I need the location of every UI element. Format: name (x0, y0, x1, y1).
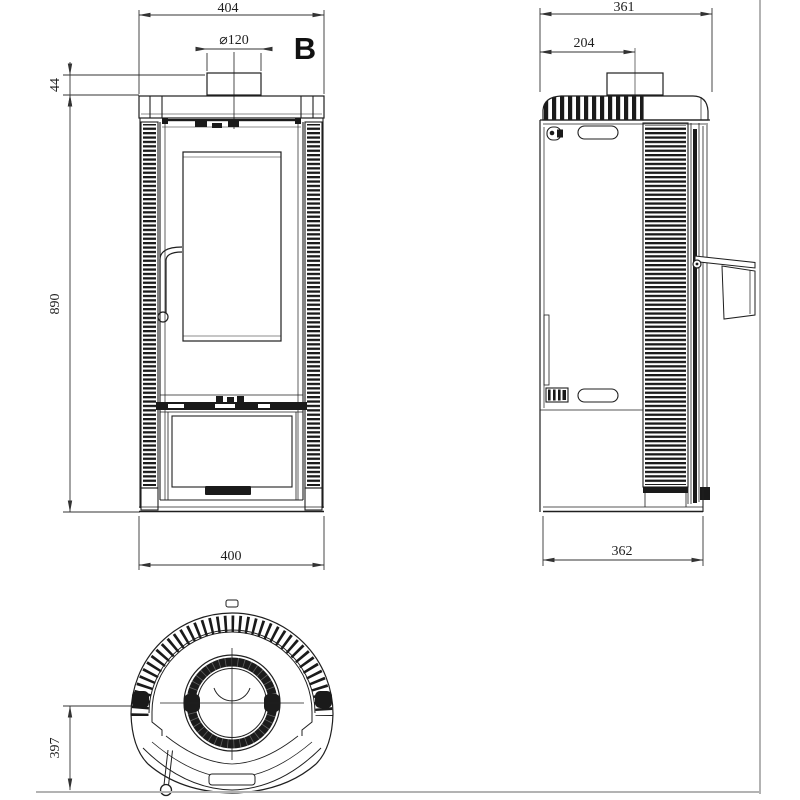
door-handle (158, 247, 182, 322)
dim-362-label: 362 (612, 544, 633, 559)
dimension-height-890: 890 (48, 95, 140, 512)
side-front-face (688, 123, 710, 504)
top-ribs-curved (543, 96, 643, 120)
right-rib-panel (305, 122, 322, 510)
side-rib-column (643, 123, 688, 507)
back-narrow-slot (544, 315, 549, 385)
dimension-flue-offset-204: 204 (540, 36, 635, 96)
dimension-bottom-width-400: 400 (139, 516, 324, 570)
ash-drawer-panel (168, 412, 296, 500)
center-crosshair (160, 648, 304, 760)
middle-divider (156, 395, 307, 412)
bottom-oval-slot (578, 389, 618, 402)
top-front-piece (643, 96, 708, 120)
front-base (139, 500, 324, 512)
dim-204-label: 204 (574, 36, 595, 51)
dim-44-label: 44 (48, 78, 63, 92)
drawing-sheet: 404 ⌀120 B 44 890 (0, 0, 800, 800)
top-oval-slot (578, 126, 618, 139)
front-tab (209, 774, 255, 785)
dim-361-label: 361 (614, 0, 635, 15)
handle-bracket-side (693, 256, 755, 319)
ring-end-cap-left (132, 691, 149, 708)
view-label-B: B (294, 31, 316, 66)
side-top-assembly (540, 96, 710, 124)
dim-397-label: 397 (48, 738, 63, 759)
side-view: 361 204 362 (540, 0, 755, 566)
dim-flue-diameter-label: ⌀120 (219, 33, 248, 48)
flue-collar-top (160, 648, 304, 760)
dimension-side-width-361: 361 (540, 0, 712, 92)
door-glass (183, 152, 281, 341)
technical-drawing: 404 ⌀120 B 44 890 (0, 0, 800, 800)
top-nub (226, 600, 238, 607)
ash-drawer-slot (205, 486, 251, 495)
side-dimensions: 361 204 362 (540, 0, 712, 566)
left-rib-panel (141, 122, 158, 510)
dim-400-label: 400 (221, 549, 242, 564)
front-view: 404 ⌀120 B 44 890 (48, 1, 324, 570)
side-back-panel (540, 120, 643, 512)
stove-door (158, 122, 303, 500)
dimension-depth-397: 397 (48, 706, 133, 790)
top-plate-front (139, 96, 324, 118)
top-view: 397 (48, 600, 333, 796)
dimension-collar-height-44: 44 (48, 62, 205, 108)
front-foot-nub (700, 487, 710, 500)
air-vent-band (162, 118, 301, 128)
front-dimensions: 404 ⌀120 B 44 890 (48, 1, 324, 570)
dim-404-label: 404 (218, 1, 239, 16)
handle-knob-top (161, 750, 173, 796)
dimension-side-bottom-362: 362 (543, 516, 703, 566)
ring-end-cap-right (315, 691, 332, 708)
dim-890-label: 890 (48, 294, 63, 315)
